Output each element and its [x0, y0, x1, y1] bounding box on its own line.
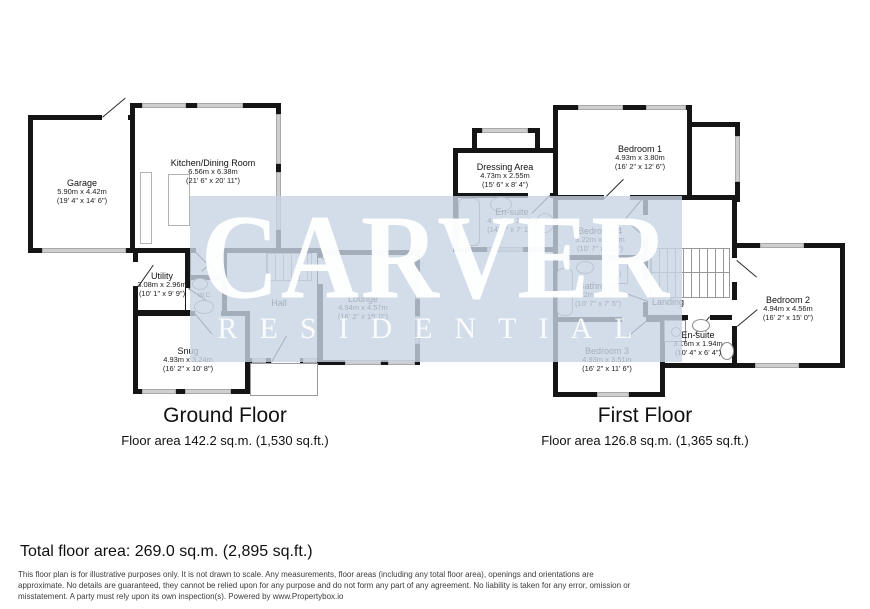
garage-label: Garage 5.90m x 4.42m (19' 4" x 14' 6") [32, 178, 132, 206]
garage-door-gap [102, 115, 128, 120]
kitchen-window-right-1 [276, 114, 281, 164]
room-imperial: (21' 6" x 20' 11") [143, 177, 283, 186]
kitchen-window-top-1 [142, 103, 186, 108]
watermark-brand-text: CARVER [190, 198, 682, 319]
room-imperial: (16' 2" x 11' 6") [557, 365, 657, 374]
disclaimer-line: misstatement. A party must rely upon its… [18, 591, 858, 602]
snug-window-1 [142, 389, 176, 394]
first-floor-title: First Floor [480, 404, 810, 428]
dressing-window [482, 128, 528, 133]
room-imperial: (16' 2" x 10' 8") [138, 365, 238, 374]
bedroom1-window-1 [578, 105, 623, 110]
ground-floor-title-block: Ground Floor Floor area 142.2 sq.m. (1,5… [60, 404, 390, 448]
room-imperial: (16' 2" x 15' 0") [738, 314, 838, 323]
watermark-band: CARVER RESIDENTIAL [190, 196, 682, 362]
bedroom2-window-bottom [755, 363, 799, 368]
kitchen-label: Kitchen/Dining Room 6.56m x 6.38m (21' 6… [143, 158, 283, 186]
room-bedroom1-bay [687, 122, 740, 202]
room-imperial: (16' 2" x 12' 6") [590, 163, 690, 172]
garage-window [42, 248, 126, 253]
ground-floor-title: Ground Floor [60, 404, 390, 428]
bedroom1-window-2 [646, 105, 686, 110]
disclaimer-line: approximate. No details are guaranteed, … [18, 580, 858, 591]
bedroom3-window [597, 392, 629, 397]
disclaimer-line: This floor plan is for illustrative purp… [18, 569, 858, 580]
room-imperial: (19' 4" x 14' 6") [32, 197, 132, 206]
disclaimer-text: This floor plan is for illustrative purp… [18, 569, 858, 602]
room-imperial: (15' 6" x 8' 4") [455, 181, 555, 190]
dressing-label: Dressing Area 4.73m x 2.55m (15' 6" x 8'… [455, 162, 555, 190]
kitchen-window-top-2 [197, 103, 243, 108]
snug-window-2 [185, 389, 231, 394]
bedroom2-window-top [760, 243, 804, 248]
bedroom2-label: Bedroom 2 4.94m x 4.56m (16' 2" x 15' 0"… [738, 295, 838, 323]
porch-outline [250, 363, 318, 396]
bay-window [735, 136, 740, 182]
bedroom2-door-gap-1 [732, 258, 737, 282]
ground-floor-area: Floor area 142.2 sq.m. (1,530 sq.ft.) [60, 433, 390, 448]
first-floor-title-block: First Floor Floor area 126.8 sq.m. (1,36… [480, 404, 810, 448]
first-floor-area: Floor area 126.8 sq.m. (1,365 sq.ft.) [480, 433, 810, 448]
floorplan-canvas: Garage 5.90m x 4.42m (19' 4" x 14' 6") K… [0, 0, 870, 609]
total-floor-area: Total floor area: 269.0 sq.m. (2,895 sq.… [20, 543, 313, 561]
bedroom2-door-gap-2 [732, 300, 737, 326]
bedroom1-label: Bedroom 1 4.93m x 3.80m (16' 2" x 12' 6"… [590, 144, 690, 172]
